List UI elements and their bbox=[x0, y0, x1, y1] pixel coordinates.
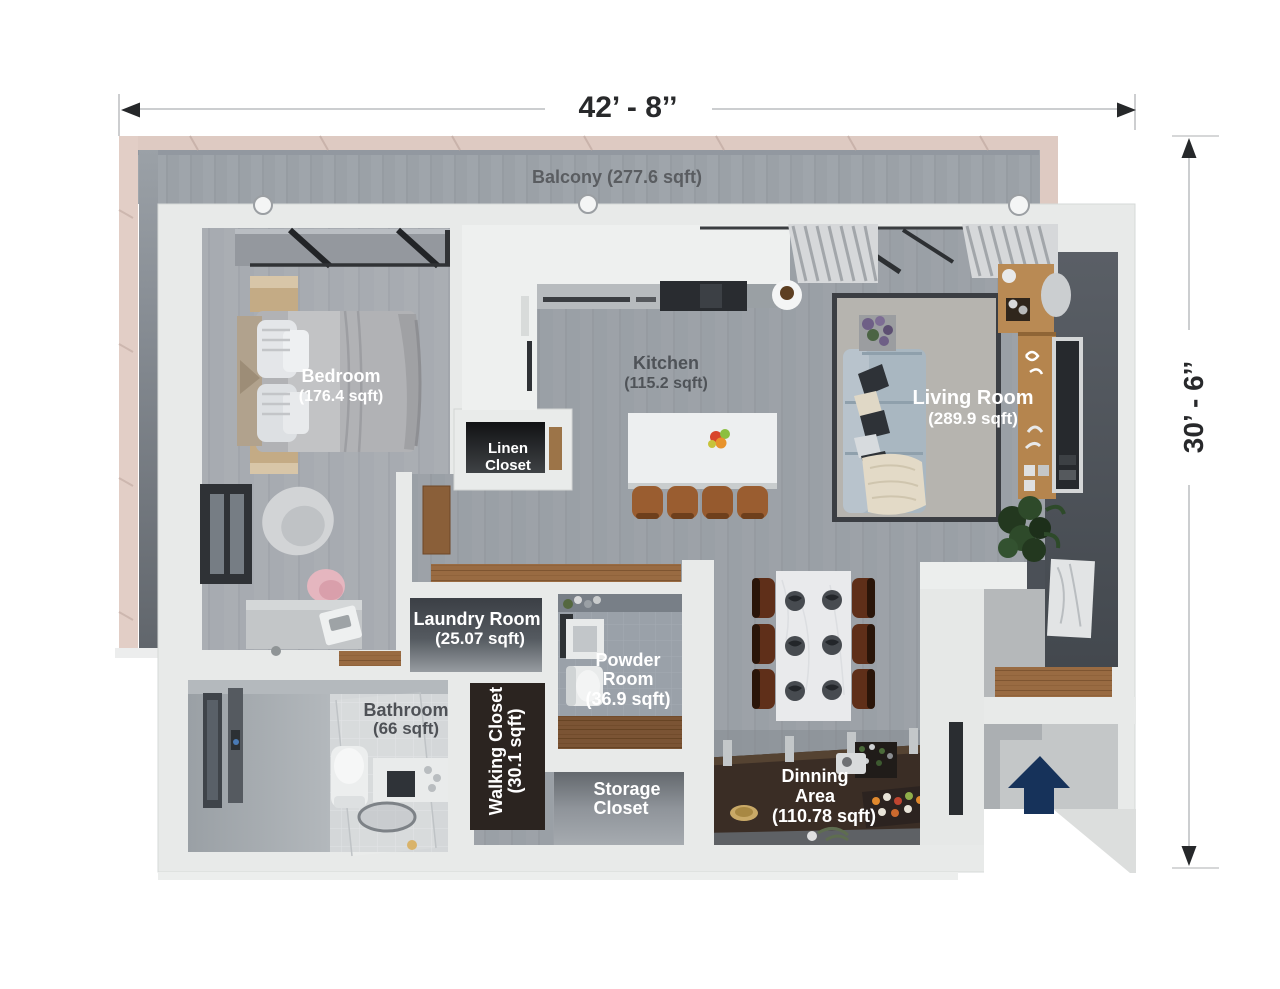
svg-text:Bathroom: Bathroom bbox=[364, 700, 449, 720]
svg-text:42’ - 8’’: 42’ - 8’’ bbox=[579, 91, 678, 124]
svg-text:Closet: Closet bbox=[593, 798, 648, 818]
svg-text:(110.78 sqft): (110.78 sqft) bbox=[772, 806, 876, 826]
svg-text:Closet: Closet bbox=[485, 457, 531, 474]
svg-text:(66 sqft): (66 sqft) bbox=[373, 719, 439, 738]
svg-text:Room: Room bbox=[603, 669, 654, 689]
svg-text:Living Room: Living Room bbox=[912, 387, 1033, 409]
svg-text:Linen: Linen bbox=[488, 440, 528, 457]
svg-text:30’ - 6’’: 30’ - 6’’ bbox=[1178, 361, 1209, 453]
svg-text:(115.2 sqft): (115.2 sqft) bbox=[624, 375, 708, 392]
svg-text:Powder: Powder bbox=[595, 650, 660, 670]
svg-text:(30.1 sqft): (30.1 sqft) bbox=[505, 708, 525, 793]
svg-text:Balcony (277.6 sqft): Balcony (277.6 sqft) bbox=[532, 167, 702, 187]
svg-text:(25.07 sqft): (25.07 sqft) bbox=[435, 629, 525, 648]
svg-text:Bedroom: Bedroom bbox=[301, 366, 380, 386]
svg-text:Area: Area bbox=[795, 786, 836, 806]
svg-text:Walking Closet: Walking Closet bbox=[486, 687, 506, 815]
svg-text:Storage: Storage bbox=[593, 779, 660, 799]
svg-text:Laundry Room: Laundry Room bbox=[413, 609, 540, 629]
svg-text:Kitchen: Kitchen bbox=[633, 353, 699, 373]
svg-text:(289.9 sqft): (289.9 sqft) bbox=[928, 409, 1018, 428]
svg-text:(176.4 sqft): (176.4 sqft) bbox=[299, 388, 383, 405]
svg-text:Dinning: Dinning bbox=[782, 766, 849, 786]
svg-text:(36.9 sqft): (36.9 sqft) bbox=[585, 689, 670, 709]
